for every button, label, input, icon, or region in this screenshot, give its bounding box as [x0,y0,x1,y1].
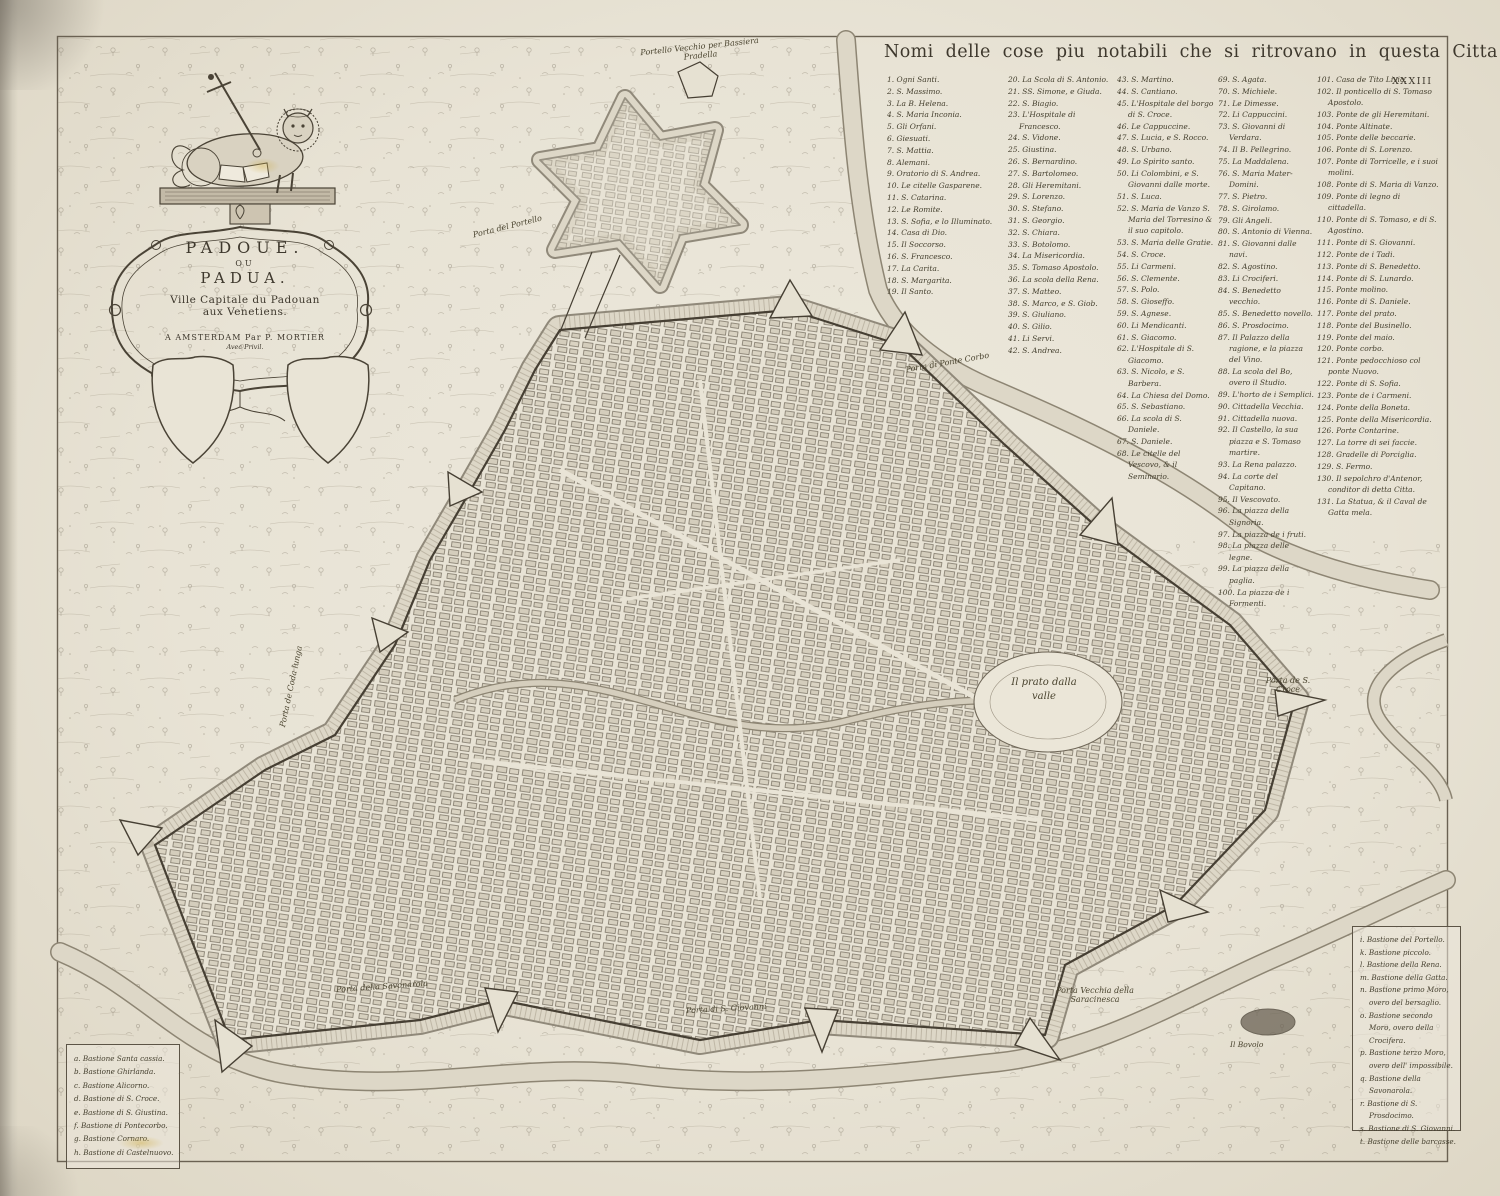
legend-entry: 38. S. Marco, e S. Giob. [1008,298,1113,309]
legend-entry: 76. S. Maria Mater-Domini. [1218,168,1314,191]
legend-entry: 63. S. Nicolo, e S. Barbera. [1117,366,1215,389]
legend-entry: 128. Gradelle di Porciglia. [1317,449,1439,460]
legend-entry: 129. S. Fermo. [1317,461,1439,472]
legend-column-4: 69. S. Agata.70. S. Michiele.71. Le Dime… [1218,74,1314,610]
shield-right [287,356,369,463]
legend-entry: 45. L'Hospitale del borgo di S. Croce. [1117,98,1215,121]
legend-entry: 95. Il Vescovato. [1218,494,1314,505]
legend-entry: 110. Ponte di S. Tomaso, e di S. Agostin… [1317,214,1439,237]
legend-entry: 116. Ponte di S. Daniele. [1317,296,1439,307]
legend-entry: 35. S. Tomaso Apostolo. [1008,262,1113,273]
legend-entry: 98. La piazza delle legne. [1218,540,1314,563]
legend-title: Nomi delle cose piu notabili che si ritr… [884,42,1450,62]
legend-entry: 29. S. Lorenzo. [1008,191,1113,202]
legend-entry: 11. S. Catarina. [887,192,1002,203]
legend-entry: 42. S. Andrea. [1008,345,1113,356]
legend-entry: 36. La scola della Rena. [1008,274,1113,285]
legend-entry: 61. S. Giacomo. [1117,332,1215,343]
legend-entry: 24. S. Vidone. [1008,132,1113,143]
shield-left [152,356,234,463]
legend-entry: 120. Ponte corbo. [1317,343,1439,354]
legend-entry: 22. S. Biagio. [1008,98,1113,109]
legend-entry: 6. Giesuati. [887,133,1002,144]
legend-entry: 88. La scola del Bo, overo il Studio. [1218,366,1314,389]
legend-entry: 2. S. Massimo. [887,86,1002,97]
legend-entry: 18. S. Margarita. [887,275,1002,286]
bastion-key-entry: g. Bastione Cornaro. [74,1132,175,1145]
legend-entry: 54. S. Croce. [1117,249,1215,260]
legend-entry: 83. Li Crociferi. [1218,273,1314,284]
legend-entry: 84. S. Benedetto vecchio. [1218,285,1314,308]
legend-entry: 117. Ponte del prato. [1317,308,1439,319]
legend-entry: 80. S. Antonio di Vienna. [1218,226,1314,237]
legend-entry: 13. S. Sofia, e lo Illuminato. [887,216,1002,227]
legend-entry: 68. Le citelle del Vescovo, & il Seminar… [1117,448,1215,482]
legend-entry: 37. S. Matteo. [1008,286,1113,297]
legend-column-3: 43. S. Martino.44. S. Cantiano.45. L'Hos… [1117,74,1215,482]
legend-entry: 81. S. Giovanni dalle navi. [1218,238,1314,261]
legend-entry: 58. S. Gioseffo. [1117,296,1215,307]
legend-entry: 15. Il Soccorso. [887,239,1002,250]
legend-entry: 73. S. Giovanni di Verdara. [1218,121,1314,144]
legend-entry: 51. S. Luca. [1117,191,1215,202]
bastion-key-entry: i. Bastione del Portello. [1360,934,1456,947]
legend-entry: 39. S. Giuliano. [1008,309,1113,320]
legend-entry: 3. La B. Helena. [887,98,1002,109]
bastion-key-entry: e. Bastione di S. Giustina. [74,1106,175,1119]
legend-entry: 115. Ponte molino. [1317,284,1439,295]
bastion-key-entry: s. Bastione di S. Giovanni. [1360,1123,1456,1136]
title-padua: PADUA. [120,269,370,287]
legend-entry: 48. S. Urbano. [1117,144,1215,155]
legend-entry: 12. Le Romite. [887,204,1002,215]
legend-entry: 14. Casa di Dio. [887,227,1002,238]
legend-entry: 107. Ponte di Torricelle, e i suoi molin… [1317,156,1439,179]
map-title-block: PADOUE. OU PADUA. Ville Capitale du Pado… [120,238,370,351]
legend-entry: 57. S. Polo. [1117,284,1215,295]
legend-entry: 122. Ponte di S. Sofia. [1317,378,1439,389]
bastion-key-entry: k. Bastione piccolo. [1360,947,1456,960]
legend-entry: 90. Cittadella Vecchia. [1218,401,1314,412]
legend-entry: 87. Il Palazzo della ragione, e la piazz… [1218,332,1314,366]
title-ou: OU [120,259,370,268]
legend-entry: 25. Giustina. [1008,144,1113,155]
bastion-key-entry: l. Bastione della Rena. [1360,959,1456,972]
legend-entry: 111. Ponte di S. Giovanni. [1317,237,1439,248]
legend-entry: 101. Casa de Tito Livio. [1317,74,1439,85]
legend-entry: 99. La piazza della paglia. [1218,563,1314,586]
legend-entry: 49. Lo Spirito santo. [1117,156,1215,167]
legend-entry: 31. S. Georgio. [1008,215,1113,226]
legend-entry: 70. S. Michiele. [1218,86,1314,97]
legend-entry: 64. La Chiesa del Domo. [1117,390,1215,401]
legend-entry: 79. Gli Angeli. [1218,215,1314,226]
legend-entry: 123. Ponte de i Carmeni. [1317,390,1439,401]
legend-entry: 41. Li Servi. [1008,333,1113,344]
legend-entry: 4. S. Maria Inconia. [887,109,1002,120]
legend-entry: 113. Ponte di S. Benedetto. [1317,261,1439,272]
legend-entry: 43. S. Martino. [1117,74,1215,85]
legend-entry: 8. Alemani. [887,157,1002,168]
legend-entry: 121. Ponte pedocchioso col ponte Nuovo. [1317,355,1439,378]
legend-entry: 9. Oratorio di S. Andrea. [887,168,1002,179]
legend-entry: 103. Ponte de gli Heremitani. [1317,109,1439,120]
pond [1241,1009,1295,1035]
legend-entry: 114. Ponte di S. Lunardo. [1317,273,1439,284]
map-sheet: PADOUE. OU PADUA. Ville Capitale du Pado… [0,0,1500,1196]
legend-entry: 28. Gli Heremitani. [1008,180,1113,191]
legend-entry: 26. S. Bernardino. [1008,156,1113,167]
legend-entry: 23. L'Hospitale di Francesco. [1008,109,1113,132]
bastion-key-entry: p. Bastione terzo Moro, overo dell' impo… [1360,1047,1456,1072]
legend-entry: 46. Le Cappuccine. [1117,121,1215,132]
title-padoue: PADOUE. [120,238,370,257]
legend-entry: 16. S. Francesco. [887,251,1002,262]
legend-entry: 85. S. Benedetto novello. [1218,308,1314,319]
legend-entry: 78. S. Girolamo. [1218,203,1314,214]
map-label-porta-s-croce: Porta de S. Croce [1262,676,1314,694]
legend-entry: 27. S. Bartolomeo. [1008,168,1113,179]
legend-entry: 77. S. Pietro. [1218,191,1314,202]
legend-panel: Nomi delle cose piu notabili che si ritr… [884,42,1450,584]
legend-entry: 125. Ponte della Misericordia. [1317,414,1439,425]
legend-column-2: 20. La Scola di S. Antonio.21. SS. Simon… [1008,74,1113,357]
legend-entry: 30. S. Stefano. [1008,203,1113,214]
legend-column-5: 101. Casa de Tito Livio.102. Il ponticel… [1317,74,1439,519]
legend-entry: 131. La Statua, & il Caval de Gatta mela… [1317,496,1439,519]
bastion-key-entry: b. Bastione Ghirlanda. [74,1065,175,1078]
key-box-right: i. Bastione del Portello.k. Bastione pic… [1352,926,1461,1131]
imprint: A AMSTERDAM Par P. MORTIER [120,333,370,342]
bastion-key-entry: m. Bastione della Gatta. [1360,972,1456,985]
legend-entry: 50. Li Colombini, e S. Giovanni dalle mo… [1117,168,1215,191]
heraldic-shields [152,356,369,463]
legend-entry: 34. La Misericordia. [1008,250,1113,261]
legend-entry: 130. Il sepolchro d'Antenor, conditor di… [1317,473,1439,496]
legend-entry: 126. Porte Contarine. [1317,425,1439,436]
legend-entry: 89. L'horto de i Semplici. [1218,389,1314,400]
legend-entry: 20. La Scola di S. Antonio. [1008,74,1113,85]
map-label-porta-saracinesca: Porta Vecchia della Saracinesca [1046,986,1144,1004]
legend-entry: 40. S. Gilio. [1008,321,1113,332]
legend-entry: 19. Il Santo. [887,286,1002,297]
legend-entry: 119. Ponte del maio. [1317,332,1439,343]
legend-entry: 17. La Carita. [887,263,1002,274]
legend-entry: 55. Li Carmeni. [1117,261,1215,272]
legend-entry: 104. Ponte Altinate. [1317,121,1439,132]
legend-entry: 109. Ponte di legno di cittadella. [1317,191,1439,214]
legend-entry: 10. Le citelle Gasparene. [887,180,1002,191]
legend-entry: 105. Ponte delle beccarie. [1317,132,1439,143]
legend-entry: 60. Li Mendicanti. [1117,320,1215,331]
map-label-prato-della-valle: Il prato dalla valle [1000,676,1088,704]
legend-entry: 94. La corte del Capitano. [1218,471,1314,494]
bastion-key-entry: q. Bastione della Savonarola. [1360,1073,1456,1098]
legend-entry: 7. S. Mattia. [887,145,1002,156]
legend-entry: 59. S. Agnese. [1117,308,1215,319]
legend-entry: 44. S. Cantiano. [1117,86,1215,97]
lion-of-st-mark-icon [160,73,335,224]
legend-entry: 74. Il B. Pellegrino. [1218,144,1314,155]
legend-entry: 5. Gli Orfani. [887,121,1002,132]
bastion-key-entry: f. Bastione di Pontecorbo. [74,1119,175,1132]
legend-entry: 82. S. Agostino. [1218,261,1314,272]
legend-entry: 108. Ponte di S. Maria di Vanzo. [1317,179,1439,190]
legend-entry: 124. Ponte della Boneta. [1317,402,1439,413]
legend-entry: 33. S. Botolomo. [1008,239,1113,250]
key-box-left: a. Bastione Santa cassia.b. Bastione Ghi… [66,1044,180,1169]
map-label-il-bovolo: Il Bovolo [1230,1040,1263,1049]
legend-entry: 75. La Maddalena. [1218,156,1314,167]
bastion-key-entry: h. Bastione di Castelnuovo. [74,1146,175,1159]
legend-entry: 72. Li Cappuccini. [1218,109,1314,120]
bastion-key-entry: n. Bastione primo Moro, overo del bersag… [1360,984,1456,1009]
legend-entry: 53. S. Maria delle Gratie. [1117,237,1215,248]
legend-entry: 65. S. Sebastiano. [1117,401,1215,412]
legend-columns: 1. Ogni Santi.2. S. Massimo.3. La B. Hel… [884,74,1450,584]
legend-entry: 56. S. Clemente. [1117,273,1215,284]
legend-entry: 62. L'Hospitale di S. Giacomo. [1117,343,1215,366]
subtitle-line1: Ville Capitale du Padouan [120,294,370,306]
legend-entry: 96. La piazza della Signoria. [1218,505,1314,528]
legend-entry: 106. Ponte di S. Lorenzo. [1317,144,1439,155]
privilege-note: Avec Privil. [120,343,370,351]
legend-entry: 67. S. Daniele. [1117,436,1215,447]
legend-entry: 69. S. Agata. [1218,74,1314,85]
legend-entry: 100. La piazza de i Formenti. [1218,587,1314,610]
subtitle-line2: aux Venetiens. [120,306,370,318]
bastion-key-entry: d. Bastione di S. Croce. [74,1092,175,1105]
legend-column-1: 1. Ogni Santi.2. S. Massimo.3. La B. Hel… [887,74,1002,298]
legend-entry: 91. Cittadella nuova. [1218,413,1314,424]
bastion-key-entry: t. Bastione delle barcasse. [1360,1136,1456,1149]
bastion-key-entry: c. Bastione Alicorno. [74,1079,175,1092]
legend-entry: 47. S. Lucia, e S. Rocco. [1117,132,1215,143]
legend-entry: 118. Ponte del Businello. [1317,320,1439,331]
bastion-key-entry: o. Bastione secondo Moro, overo della Cr… [1360,1010,1456,1048]
bastion-key-entry: a. Bastione Santa cassia. [74,1052,175,1065]
legend-entry: 52. S. Maria de Vanzo S. Maria del Torre… [1117,203,1215,237]
legend-entry: 93. La Rena palazzo. [1218,459,1314,470]
legend-entry: 127. La torre di sei faccie. [1317,437,1439,448]
legend-entry: 97. La piazza de i fruti. [1218,529,1314,540]
legend-entry: 66. La scola di S. Daniele. [1117,413,1215,436]
legend-entry: 112. Ponte de i Tadi. [1317,249,1439,260]
legend-entry: 92. Il Castello, la sua piazza e S. Toma… [1218,424,1314,458]
legend-entry: 32. S. Chiara. [1008,227,1113,238]
legend-entry: 1. Ogni Santi. [887,74,1002,85]
legend-entry: 71. Le Dimesse. [1218,98,1314,109]
legend-entry: 102. Il ponticello di S. Tomaso Apostolo… [1317,86,1439,109]
legend-entry: 86. S. Prosdocimo. [1218,320,1314,331]
bastion-key-entry: r. Bastione di S. Prosdocimo. [1360,1098,1456,1123]
legend-entry: 21. SS. Simone, e Giuda. [1008,86,1113,97]
